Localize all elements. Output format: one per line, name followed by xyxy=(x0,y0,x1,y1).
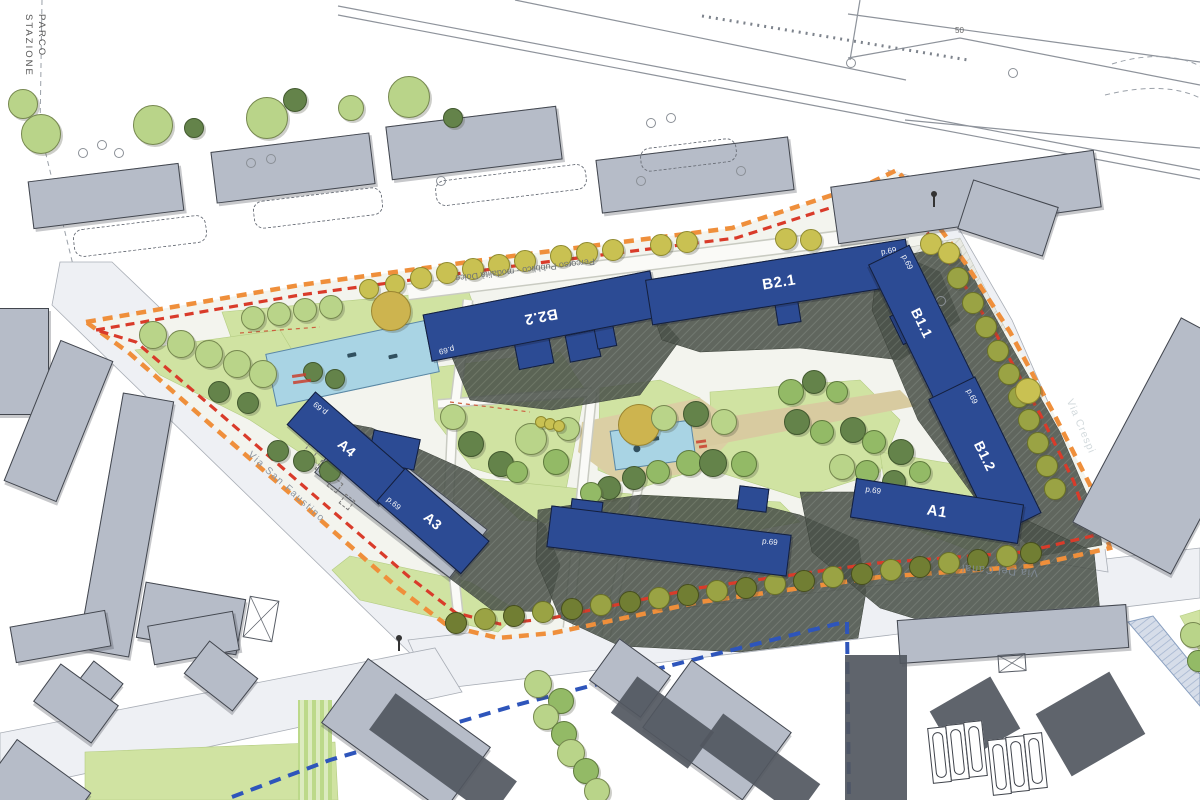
tree xyxy=(388,76,430,118)
tree xyxy=(167,330,195,358)
tree xyxy=(784,409,810,435)
floors-label: p.69 xyxy=(900,253,915,271)
distance-mark: 50 xyxy=(955,26,964,35)
traffic-light-icon xyxy=(933,196,935,207)
tree xyxy=(371,291,411,331)
tree xyxy=(440,404,466,430)
shrub-icon xyxy=(636,176,646,186)
tree xyxy=(862,430,886,454)
floors-label: p.69 xyxy=(385,495,403,512)
tree xyxy=(338,95,364,121)
tree xyxy=(938,242,960,264)
tree xyxy=(676,231,698,253)
tree xyxy=(619,591,641,613)
tree xyxy=(810,420,834,444)
shrub-icon xyxy=(266,154,276,164)
tree xyxy=(443,108,463,128)
tree xyxy=(1180,622,1200,648)
tree xyxy=(800,229,822,251)
tree xyxy=(947,267,969,289)
tree xyxy=(650,234,672,256)
tree xyxy=(267,302,291,326)
shrub-icon xyxy=(1008,68,1018,78)
tree xyxy=(646,460,670,484)
tree xyxy=(822,566,844,588)
tree xyxy=(651,405,677,431)
skylight xyxy=(992,744,1008,791)
building-label: B2.1 xyxy=(761,271,797,293)
tree xyxy=(909,461,931,483)
tree xyxy=(711,409,737,435)
tree xyxy=(237,392,259,414)
guard-rail xyxy=(702,16,968,60)
tree xyxy=(293,450,315,472)
tree xyxy=(139,321,167,349)
tree xyxy=(195,340,223,368)
tree xyxy=(319,295,343,319)
traffic-light-icon xyxy=(398,640,400,651)
tree xyxy=(764,573,786,595)
skylight xyxy=(950,729,966,776)
tree xyxy=(553,420,565,432)
tree xyxy=(241,306,265,330)
tree xyxy=(133,105,173,145)
skylight xyxy=(932,732,948,779)
shrub-icon xyxy=(846,58,856,68)
building-shadow xyxy=(845,655,907,800)
building-label: B1.2 xyxy=(971,438,999,473)
tree xyxy=(778,379,804,405)
tree xyxy=(829,454,855,480)
floors-label: p.69 xyxy=(965,387,980,405)
tree xyxy=(1020,542,1042,564)
building-label: A3 xyxy=(421,509,446,533)
tree xyxy=(1036,455,1058,477)
tree xyxy=(793,570,815,592)
tree xyxy=(699,449,727,477)
skylight xyxy=(968,726,984,773)
shrub-icon xyxy=(736,166,746,176)
tree xyxy=(851,563,873,585)
park-area-label: PARCO STAZIONE xyxy=(22,14,48,98)
building-label: B1.1 xyxy=(908,305,936,340)
shrub-icon xyxy=(646,118,656,128)
tree xyxy=(474,608,496,630)
shrub-icon xyxy=(78,148,88,158)
tree xyxy=(293,298,317,322)
shrub-icon xyxy=(114,148,124,158)
floors-label: p.69 xyxy=(311,400,329,417)
tree xyxy=(524,670,552,698)
play-equipment-icon xyxy=(347,352,357,358)
tree xyxy=(1018,409,1040,431)
park-label-line2: STAZIONE xyxy=(23,14,34,77)
tree xyxy=(987,340,1009,362)
shrub-icon xyxy=(246,158,256,168)
tree xyxy=(246,97,288,139)
tree xyxy=(283,88,307,112)
tree xyxy=(184,118,204,138)
tree xyxy=(561,598,583,620)
building-label: A4 xyxy=(335,436,360,460)
tree xyxy=(962,292,984,314)
floors-label: p.69 xyxy=(865,485,882,496)
tree xyxy=(590,594,612,616)
tree xyxy=(1027,432,1049,454)
shrub-icon xyxy=(666,113,676,123)
skylight xyxy=(1010,741,1026,788)
tree xyxy=(532,601,554,623)
tree xyxy=(1015,378,1041,404)
tree xyxy=(21,114,61,154)
x-structure xyxy=(997,653,1026,673)
tree xyxy=(223,350,251,378)
tree xyxy=(998,363,1020,385)
tree xyxy=(888,439,914,465)
tree xyxy=(677,584,699,606)
tree xyxy=(706,580,728,602)
tree xyxy=(648,587,670,609)
tree xyxy=(208,381,230,403)
shrub-icon xyxy=(97,140,107,150)
tree xyxy=(880,559,902,581)
tree xyxy=(826,381,848,403)
tree xyxy=(975,316,997,338)
play-equipment-icon xyxy=(388,354,398,360)
site-plan-canvas: B2.2 p.69 B2.1 p.69 B1.1 p.69 B1.2 p.69 … xyxy=(0,0,1200,800)
tree xyxy=(249,360,277,388)
tree xyxy=(506,461,528,483)
floors-label: p.69 xyxy=(762,536,779,547)
tree xyxy=(622,466,646,490)
tree xyxy=(731,451,757,477)
tree xyxy=(775,228,797,250)
tree xyxy=(325,369,345,389)
tree xyxy=(584,778,610,800)
play-equipment-icon xyxy=(633,445,641,453)
park-label-line1: PARCO xyxy=(36,14,47,57)
tree xyxy=(267,440,289,462)
floors-label: p.69 xyxy=(438,344,455,356)
tree xyxy=(1044,478,1066,500)
shrub-icon xyxy=(436,176,446,186)
tree xyxy=(503,605,525,627)
skylight xyxy=(1028,738,1044,785)
tree xyxy=(543,449,569,475)
proposed-building-wing xyxy=(737,485,770,512)
tree xyxy=(445,612,467,634)
tree xyxy=(735,577,757,599)
tree xyxy=(683,401,709,427)
tree xyxy=(458,431,484,457)
building-label: A1 xyxy=(926,501,949,521)
tree xyxy=(802,370,826,394)
building-label: B2.2 xyxy=(523,304,559,327)
